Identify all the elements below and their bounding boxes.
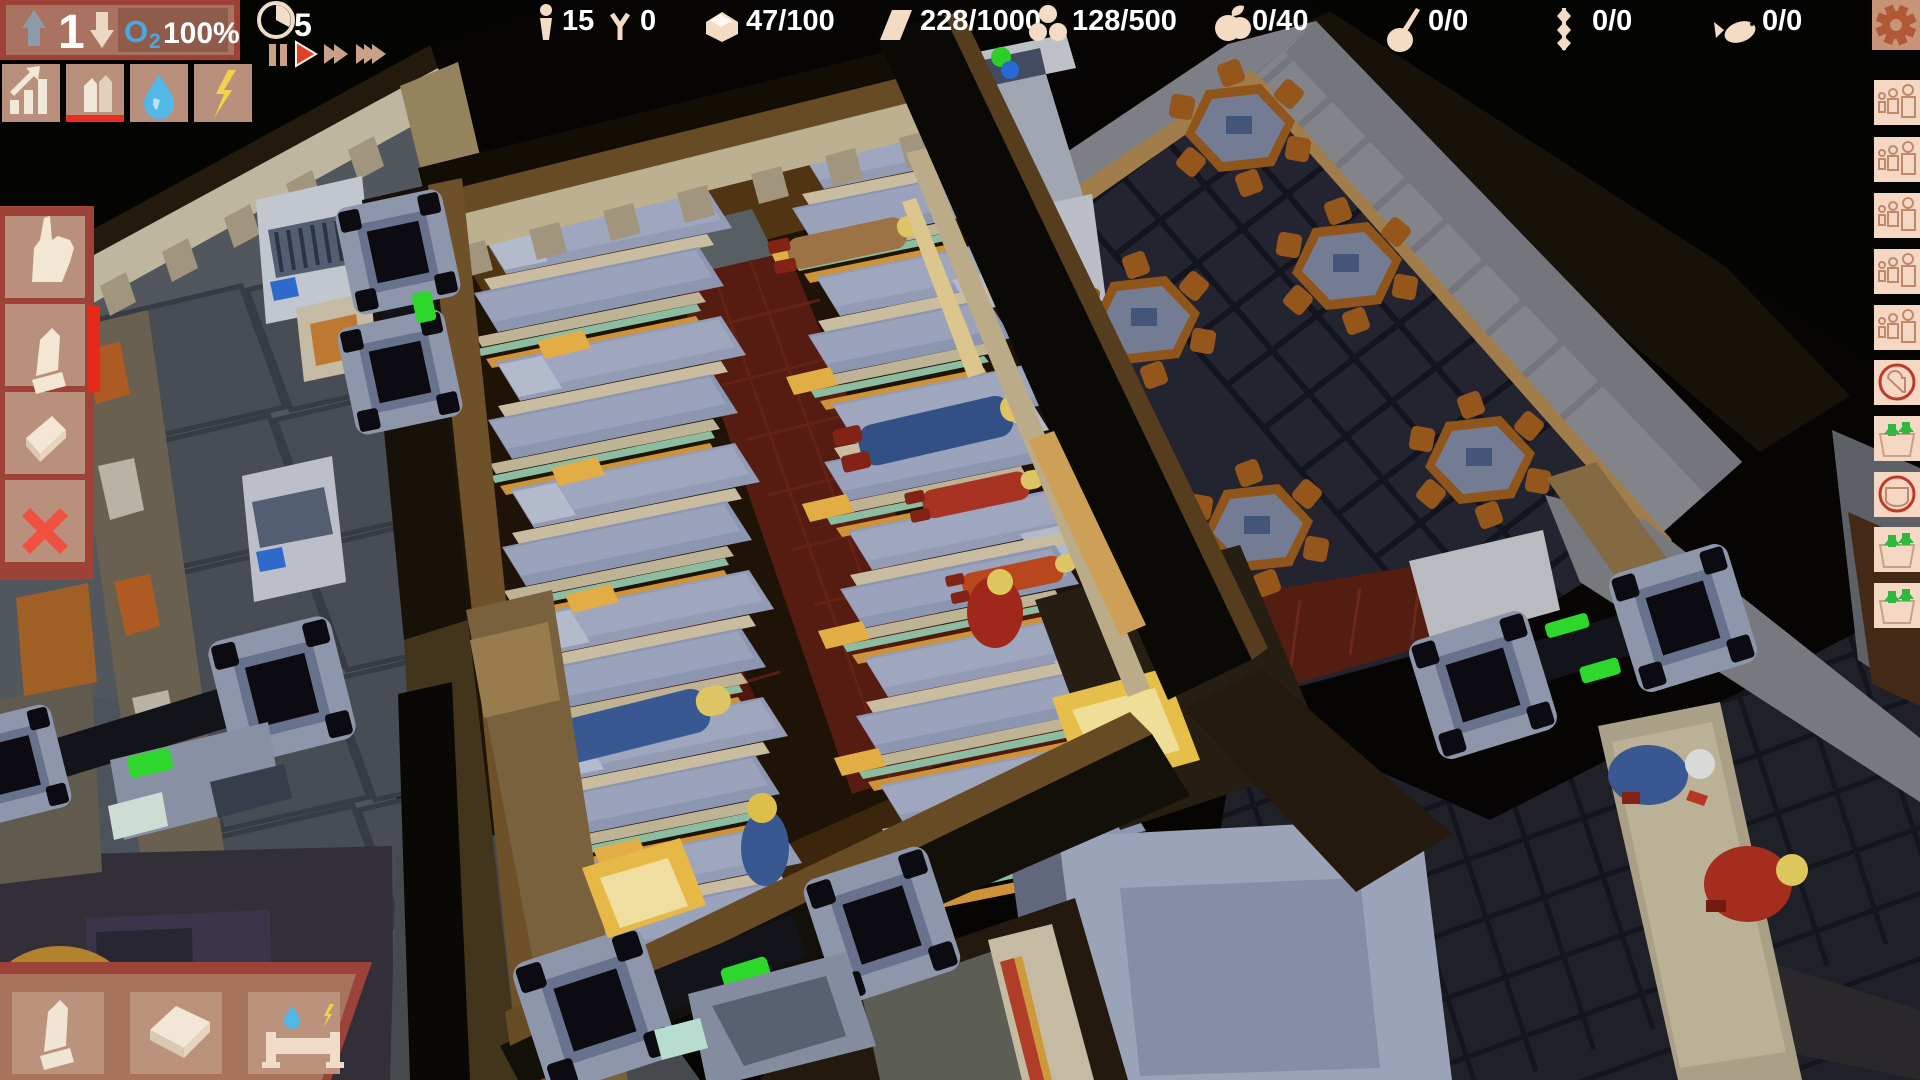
svg-text:15: 15 — [562, 5, 594, 37]
svg-text:47/100: 47/100 — [746, 5, 835, 37]
svg-text:0: 0 — [640, 5, 656, 37]
svg-text:5: 5 — [294, 7, 312, 43]
svg-text:128/500: 128/500 — [1072, 5, 1177, 37]
svg-text:0/40: 0/40 — [1252, 5, 1308, 37]
svg-text:0/0: 0/0 — [1428, 5, 1468, 37]
svg-text:100%: 100% — [163, 17, 240, 50]
svg-text:O: O — [124, 14, 148, 49]
svg-text:0/0: 0/0 — [1592, 5, 1632, 37]
svg-text:0/0: 0/0 — [1762, 5, 1802, 37]
svg-text:1: 1 — [58, 6, 85, 59]
svg-text:228/1000: 228/1000 — [920, 5, 1041, 37]
svg-text:2: 2 — [149, 30, 161, 53]
